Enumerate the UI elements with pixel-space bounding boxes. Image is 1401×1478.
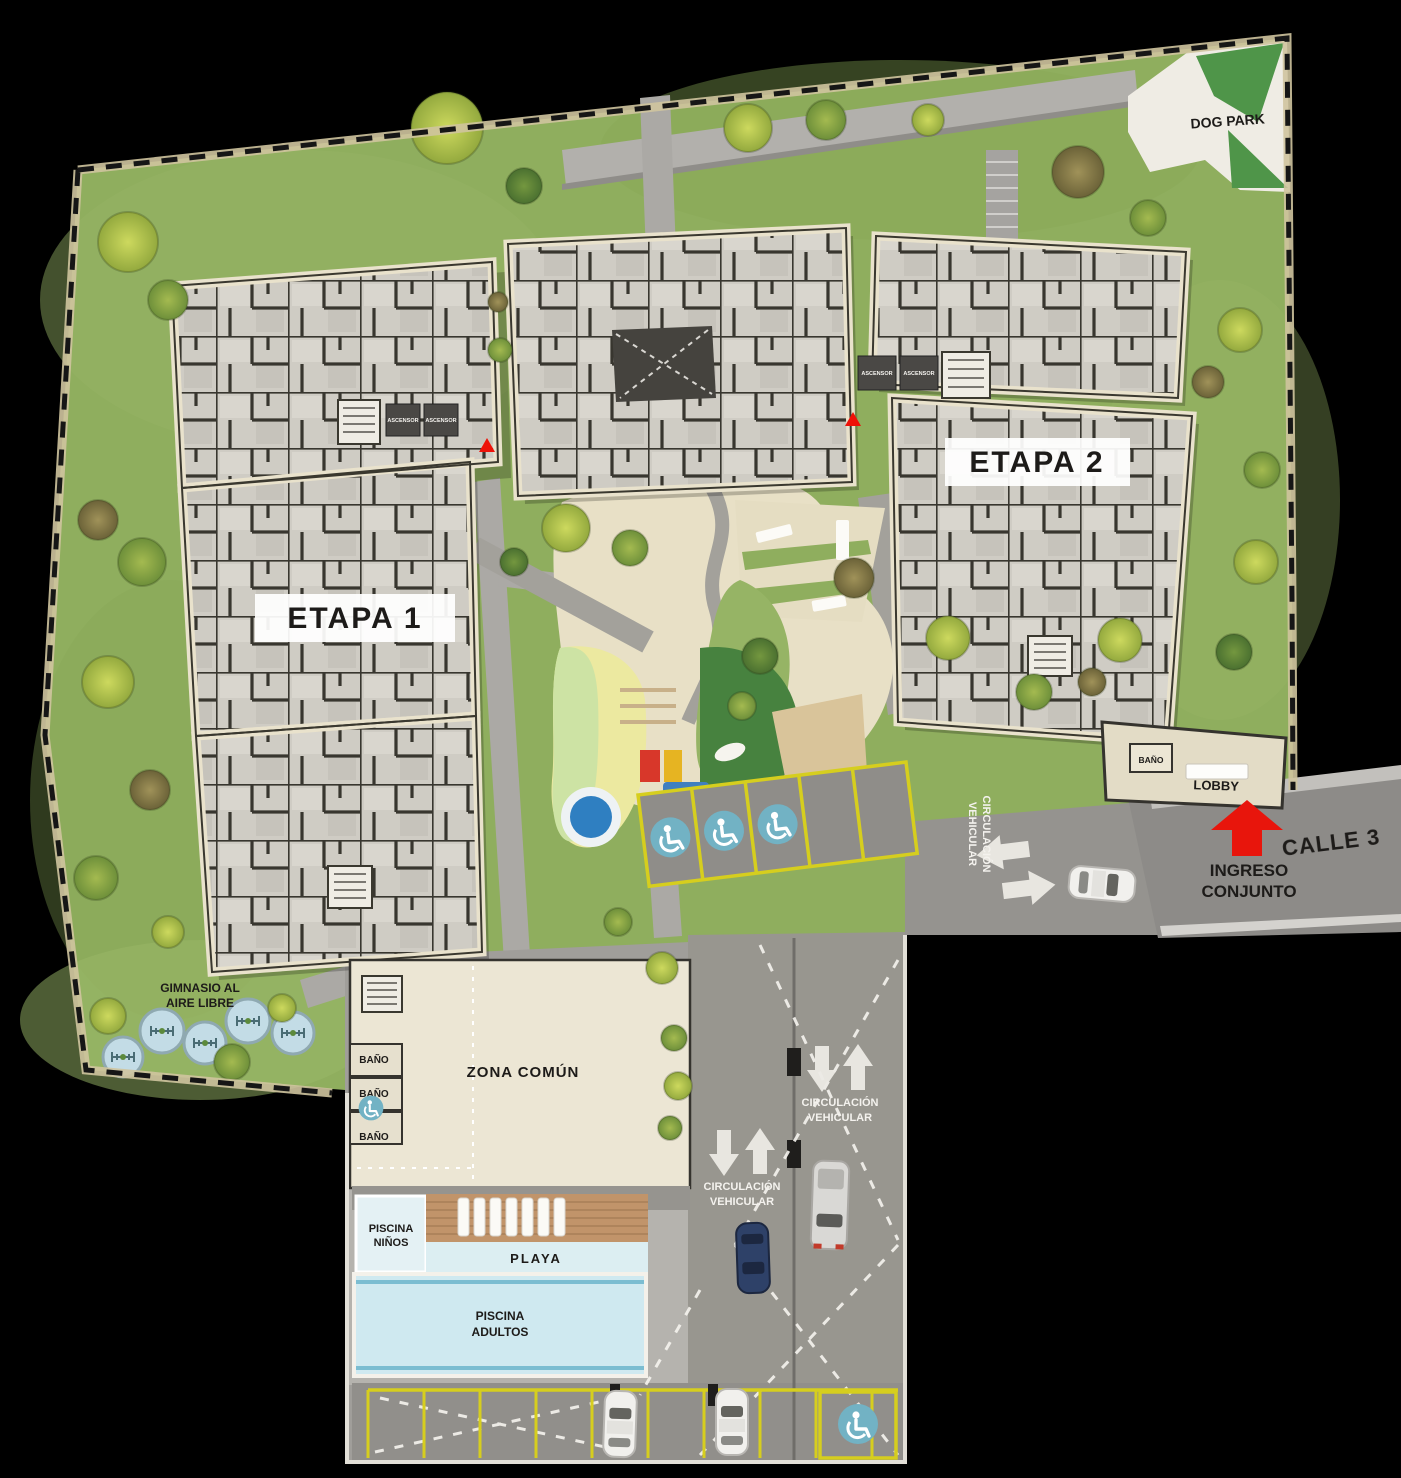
bano-label: BAÑO — [359, 1130, 389, 1143]
zona-comun-label: ZONA COMÚN — [467, 1063, 580, 1081]
speed-bump — [787, 1140, 801, 1168]
ascensor-label: ASCENSOR — [903, 371, 934, 377]
circulacion-label-2b: VEHICULAR — [710, 1196, 774, 1208]
ascensor-label: ASCENSOR — [861, 371, 892, 377]
corridor-bridge — [612, 326, 716, 402]
circulacion-label-1b: VEHICULAR — [808, 1112, 872, 1124]
steps-path — [986, 150, 1018, 242]
lobby-bano-label: BAÑO — [1138, 755, 1163, 765]
ascensor-label: ASCENSOR — [425, 418, 456, 424]
playa-label: PLAYA — [510, 1251, 562, 1266]
stairwell — [338, 400, 380, 444]
gimnasio-label-2: AIRE LIBRE — [166, 996, 234, 1010]
site-plan-svg: DOG PARK — [0, 0, 1401, 1478]
wood-deck — [426, 1194, 648, 1242]
piscina-adultos-label-1: PISCINA — [476, 1309, 525, 1323]
car-white — [1068, 865, 1137, 903]
etapa2-label: ETAPA 2 — [969, 446, 1104, 479]
lounge-chairs — [458, 1198, 565, 1236]
lobby-label: LOBBY — [1193, 777, 1239, 794]
piscina-adultos-label-2: ADULTOS — [472, 1325, 529, 1339]
splash-pool — [570, 796, 612, 838]
etapa1-label: ETAPA 1 — [287, 602, 422, 635]
stairwell — [328, 866, 372, 908]
gimnasio-label-1: GIMNASIO AL — [160, 981, 240, 995]
etapa1-north-wing — [172, 262, 498, 488]
connector-road — [905, 800, 1165, 935]
piscina-ninos-label-2: NIÑOS — [374, 1236, 409, 1249]
speed-bump — [787, 1048, 801, 1076]
svg-text:VEHICULAR: VEHICULAR — [966, 802, 978, 866]
stairwell — [1028, 636, 1072, 676]
lobby-wing: BAÑO LOBBY — [1102, 722, 1286, 808]
car-blue — [736, 1222, 770, 1293]
wheelchair-icon — [838, 1404, 878, 1444]
van-gray — [810, 1160, 849, 1249]
ascensor-label: ASCENSOR — [387, 418, 418, 424]
circulacion-label-1a: CIRCULACIÓN — [802, 1096, 879, 1109]
ingreso-label-1: INGRESO — [1210, 861, 1288, 880]
bench — [836, 520, 849, 560]
circulacion-label-2a: CIRCULACIÓN — [704, 1180, 781, 1193]
etapa1-south-wing — [196, 716, 482, 972]
play-structure-red — [640, 750, 660, 782]
stairwell — [942, 352, 990, 398]
site-plan-image: DOG PARK — [0, 0, 1401, 1478]
piscina-ninos-label-1: PISCINA — [369, 1223, 414, 1235]
bano-label: BAÑO — [359, 1053, 389, 1066]
play-structure-yellow — [664, 750, 682, 782]
car-white — [603, 1390, 637, 1457]
pools: PISCINA NIÑOS PLAYA PISCINA ADULTOS — [354, 1194, 648, 1376]
wheelchair-icon — [359, 1096, 384, 1121]
ingreso-label-2: CONJUNTO — [1201, 882, 1296, 901]
svg-text:CIRCULACIÓN: CIRCULACIÓN — [980, 796, 993, 873]
bathrooms: BAÑO BAÑO BAÑO — [350, 1044, 402, 1144]
stairwell — [362, 976, 402, 1012]
car-white — [716, 1389, 748, 1455]
adult-pool: PISCINA ADULTOS — [354, 1274, 646, 1376]
zona-comun: BAÑO BAÑO BAÑO ZONA COMÚN — [350, 960, 690, 1210]
path-north — [640, 95, 676, 254]
